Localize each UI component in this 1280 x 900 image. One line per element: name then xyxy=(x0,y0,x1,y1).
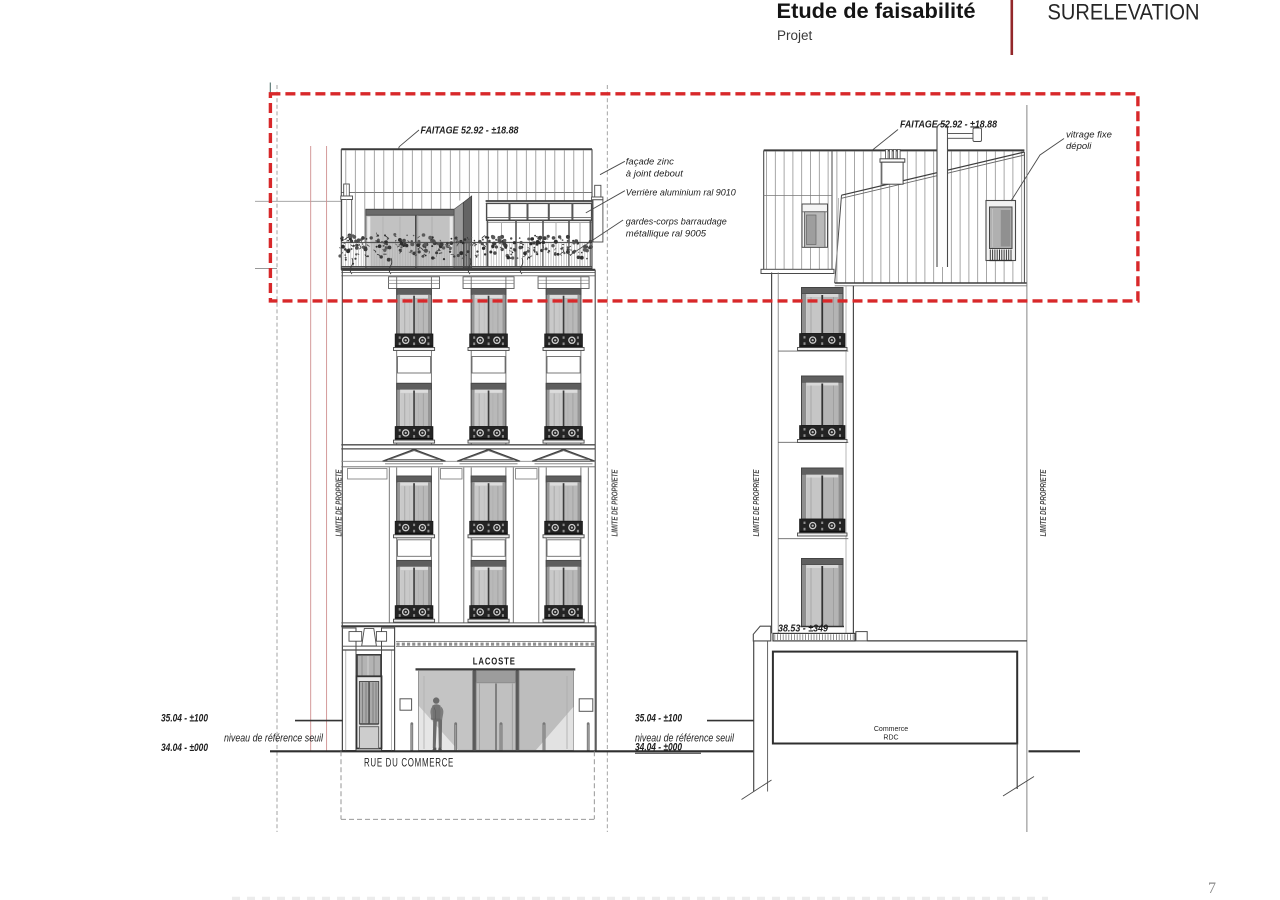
svg-text:façade zinc: façade zinc xyxy=(626,157,674,168)
svg-text:34.04 - ±000: 34.04 - ±000 xyxy=(635,742,683,754)
svg-text:Verrière aluminium ral 9010: Verrière aluminium ral 9010 xyxy=(626,188,737,199)
svg-text:LIMITE DE PROPRIETE: LIMITE DE PROPRIETE xyxy=(752,469,761,536)
svg-text:34.04 - ±000: 34.04 - ±000 xyxy=(161,742,209,754)
svg-text:FAITAGE 52.92 - ±18.88: FAITAGE 52.92 - ±18.88 xyxy=(421,125,519,137)
svg-text:à joint debout: à joint debout xyxy=(626,169,683,180)
svg-text:Etude de faisabilité: Etude de faisabilité xyxy=(777,0,976,23)
svg-text:35.04 - ±100: 35.04 - ±100 xyxy=(161,713,209,725)
svg-text:RUE DU COMMERCE: RUE DU COMMERCE xyxy=(364,758,454,770)
svg-text:Projet: Projet xyxy=(777,28,813,43)
svg-text:SURELEVATION: SURELEVATION xyxy=(1048,0,1200,25)
svg-text:vitrage fixe: vitrage fixe xyxy=(1066,130,1112,141)
svg-text:38.53 - ±349: 38.53 - ±349 xyxy=(778,624,828,635)
svg-text:LACOSTE: LACOSTE xyxy=(473,656,516,668)
svg-text:RDC: RDC xyxy=(883,735,898,742)
svg-text:niveau de référence seuil: niveau de référence seuil xyxy=(224,733,323,745)
svg-text:35.04 - ±100: 35.04 - ±100 xyxy=(635,713,683,725)
svg-text:LIMITE DE PROPRIETE: LIMITE DE PROPRIETE xyxy=(611,469,620,536)
svg-text:Commerce: Commerce xyxy=(874,726,908,733)
svg-text:7: 7 xyxy=(1208,880,1216,897)
svg-text:métallique ral 9005: métallique ral 9005 xyxy=(626,229,707,240)
svg-text:gardes-corps barraudage: gardes-corps barraudage xyxy=(626,217,727,228)
svg-text:LIMITE DE PROPRIETE: LIMITE DE PROPRIETE xyxy=(1039,469,1048,536)
svg-text:FAITAGE 52.92 - ±18.88: FAITAGE 52.92 - ±18.88 xyxy=(900,119,997,131)
svg-text:dépoli: dépoli xyxy=(1066,141,1092,152)
